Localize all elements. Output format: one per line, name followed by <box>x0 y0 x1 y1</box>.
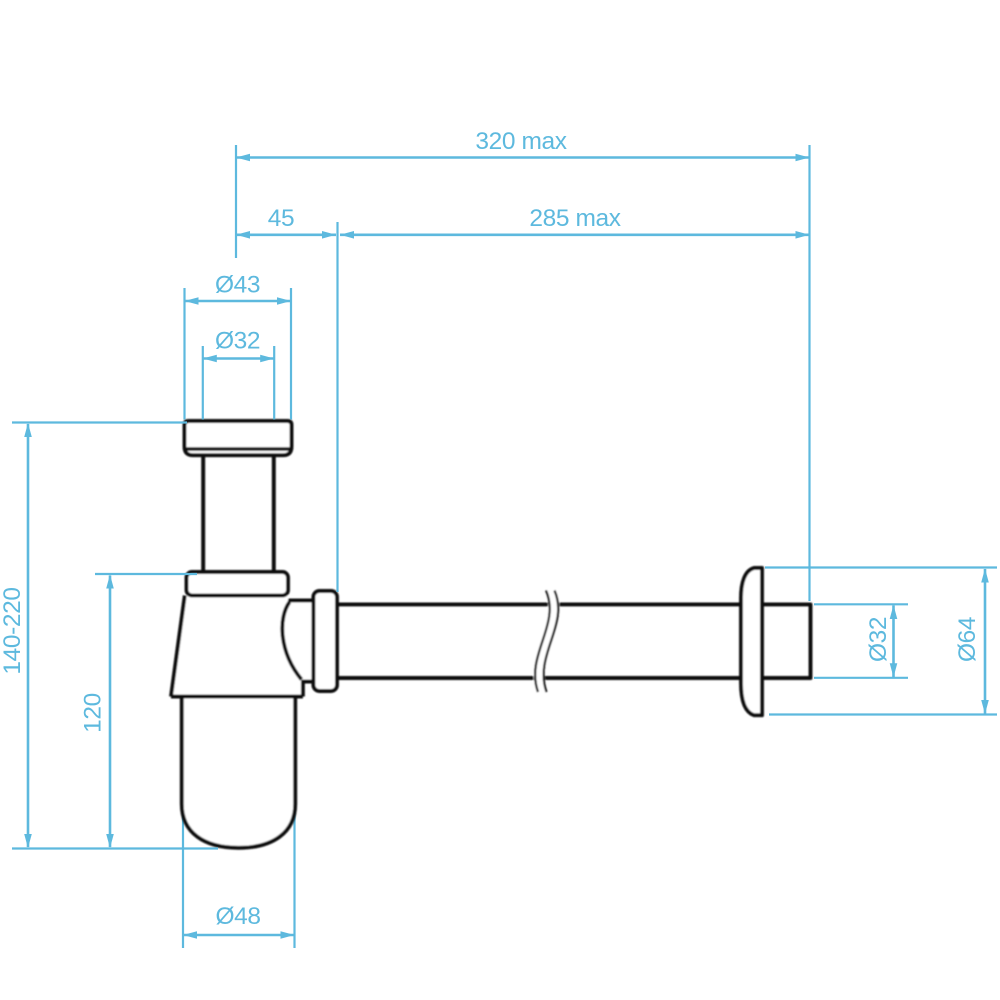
svg-text:320 max: 320 max <box>475 128 566 155</box>
svg-text:Ø32: Ø32 <box>865 617 892 662</box>
svg-text:Ø48: Ø48 <box>215 903 260 930</box>
svg-text:120: 120 <box>79 693 106 733</box>
svg-text:140-220: 140-220 <box>0 587 26 674</box>
svg-text:45: 45 <box>268 205 294 232</box>
svg-text:Ø64: Ø64 <box>954 617 981 662</box>
svg-text:Ø32: Ø32 <box>215 328 260 355</box>
svg-text:Ø43: Ø43 <box>215 272 260 299</box>
svg-text:285 max: 285 max <box>529 205 620 232</box>
